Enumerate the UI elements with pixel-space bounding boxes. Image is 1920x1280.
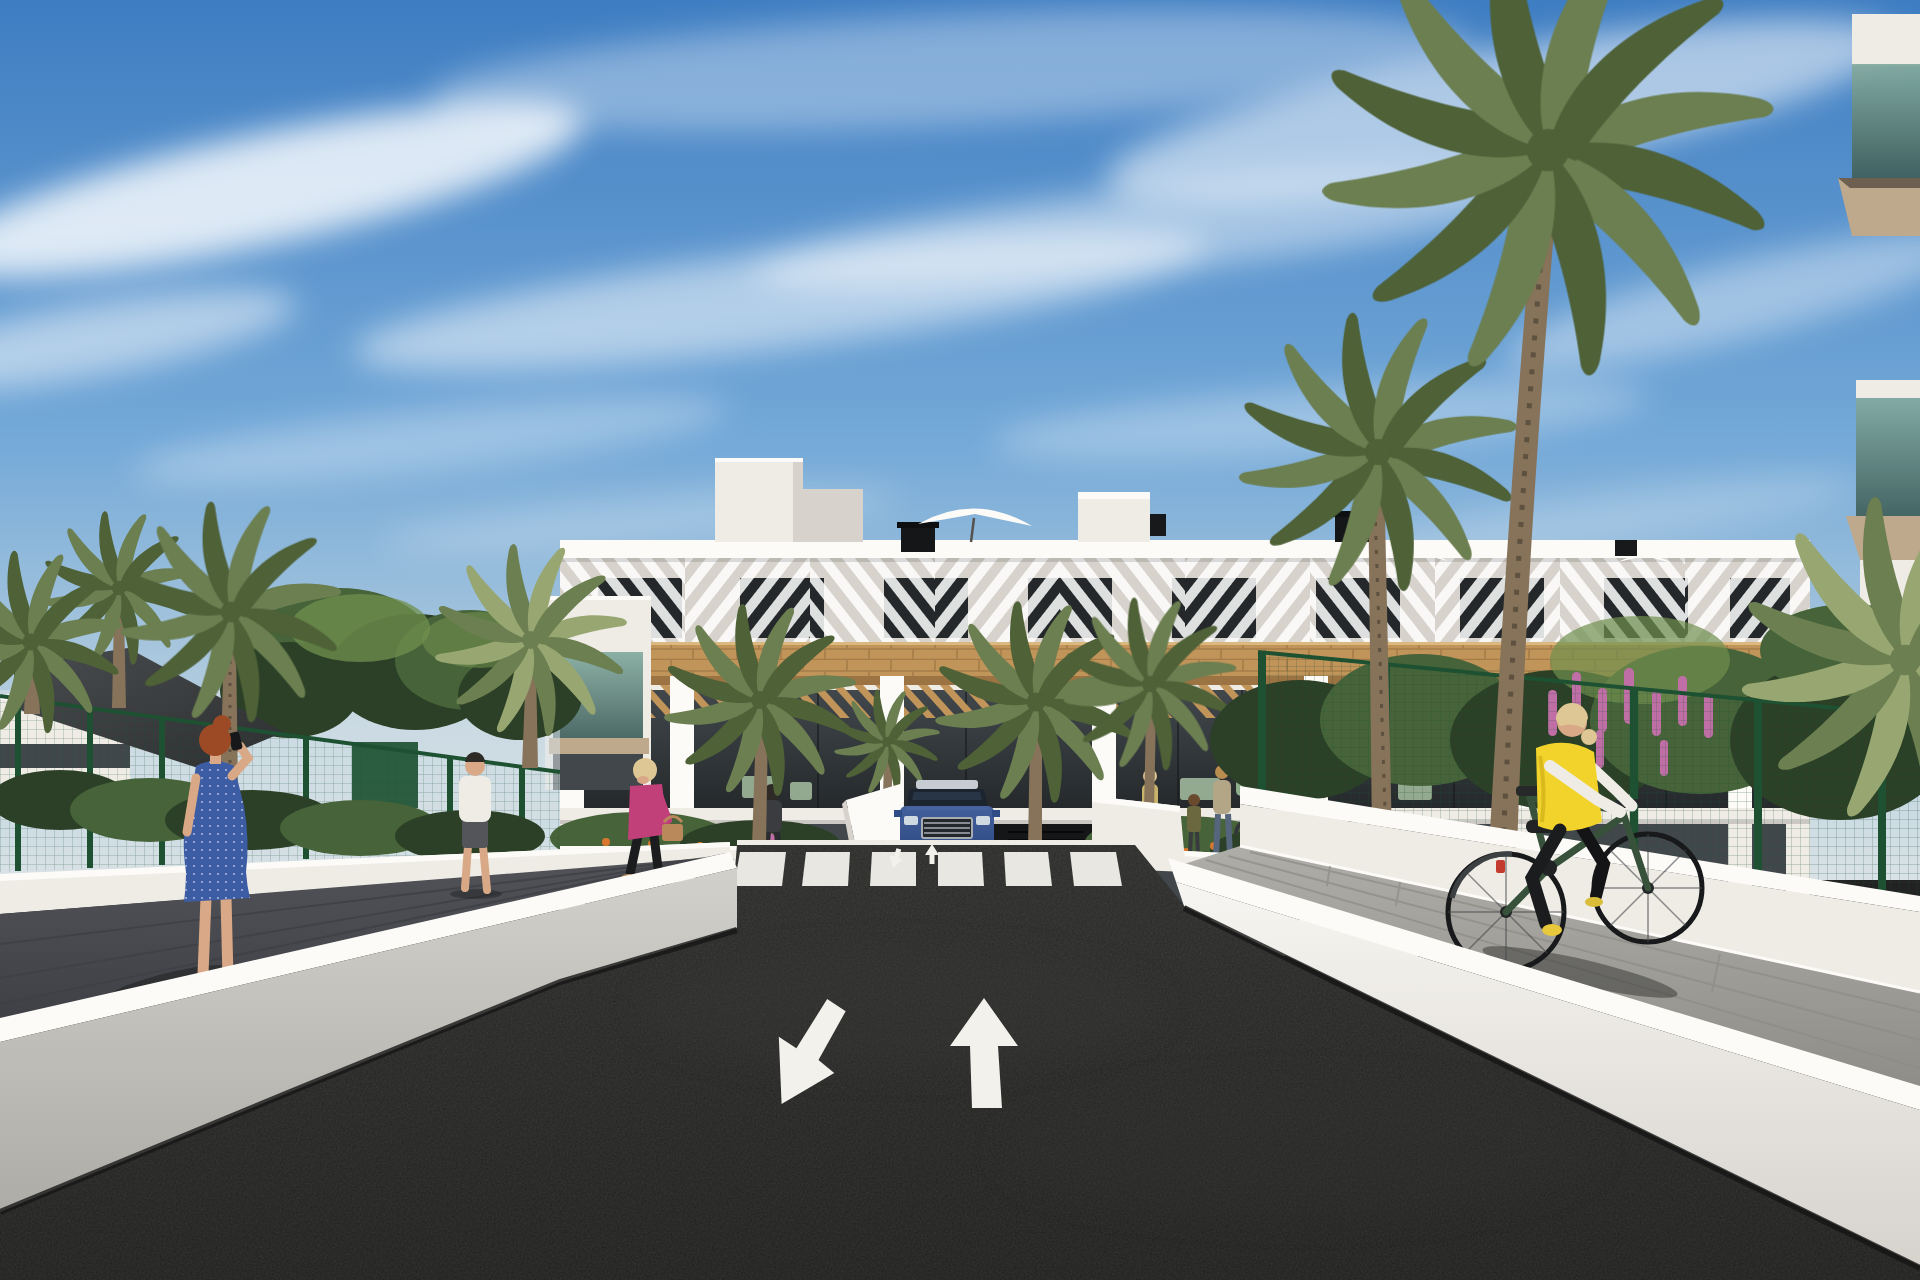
architectural-render-image [0,0,1920,1280]
render-viewport [0,0,1920,1280]
chimney [901,526,935,552]
chimney [1615,540,1637,556]
chimney [1150,514,1166,536]
